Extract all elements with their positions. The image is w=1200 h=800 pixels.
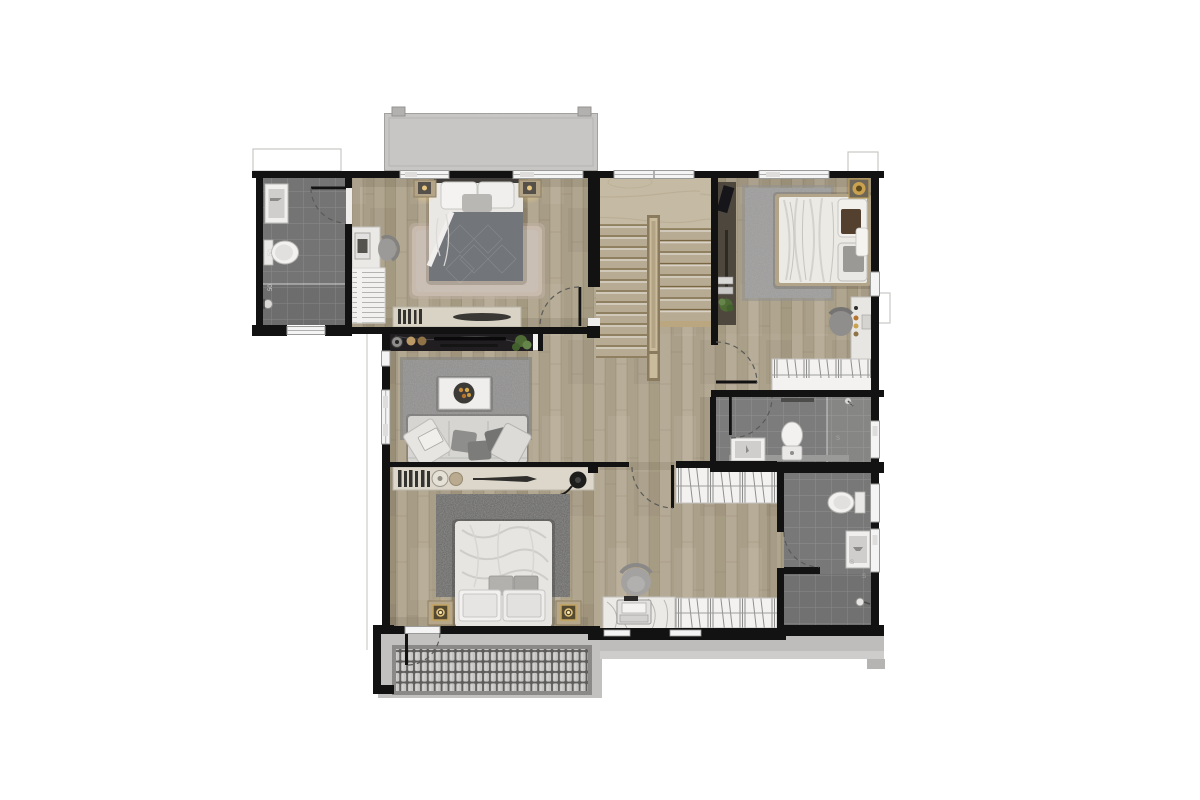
svg-text:S: S bbox=[850, 560, 854, 566]
svg-text:S: S bbox=[836, 436, 840, 442]
svg-text:S: S bbox=[849, 402, 853, 408]
svg-text:50: 50 bbox=[268, 249, 274, 256]
svg-text:S: S bbox=[862, 574, 866, 580]
svg-text:50: 50 bbox=[268, 284, 274, 291]
